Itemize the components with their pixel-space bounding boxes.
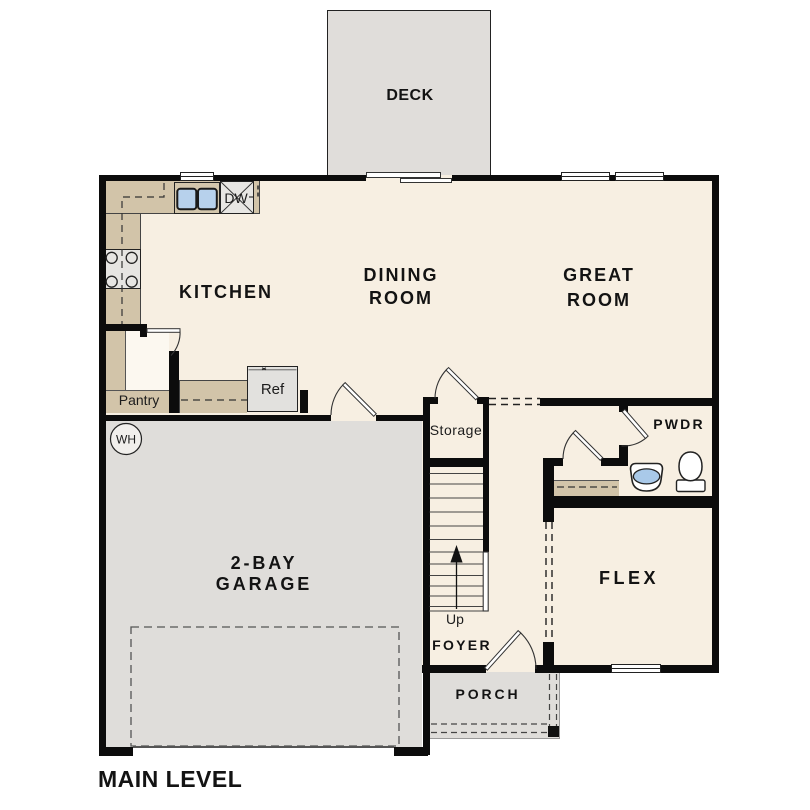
svg-text:WH: WH [116,433,136,447]
